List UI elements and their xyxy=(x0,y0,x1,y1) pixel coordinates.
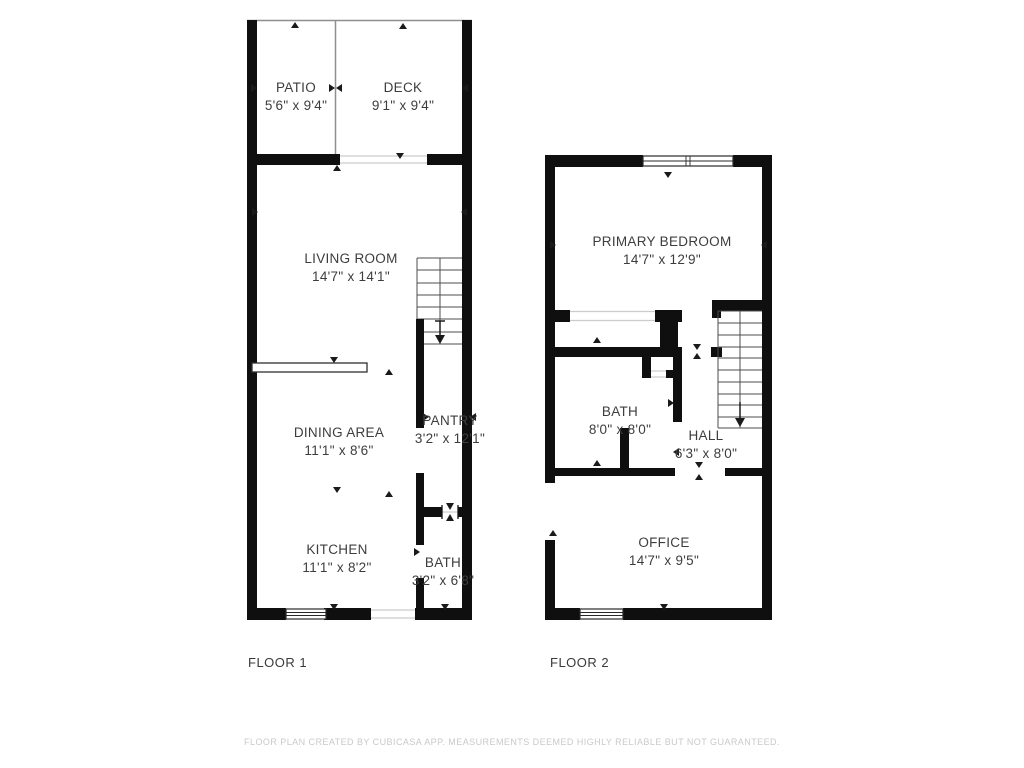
room-name: DINING AREA xyxy=(294,424,384,442)
floor2-caption: FLOOR 2 xyxy=(550,655,609,670)
room-dims: 9'1" x 9'4" xyxy=(372,97,434,115)
bedroom-opening-icon xyxy=(570,312,655,321)
entry-opening-icon xyxy=(371,610,415,618)
floor1-caption: FLOOR 1 xyxy=(248,655,307,670)
room-name: DECK xyxy=(372,79,434,97)
room-dims: 11'1" x 8'2" xyxy=(302,559,371,577)
room-name: PRIMARY BEDROOM xyxy=(592,233,731,251)
room-dims: 8'0" x 8'0" xyxy=(589,421,651,439)
room-dims: 11'1" x 8'6" xyxy=(294,442,384,460)
room-dims: 14'7" x 12'9" xyxy=(592,251,731,269)
floorplan-page: PATIO 5'6" x 9'4" DECK 9'1" x 9'4" LIVIN… xyxy=(0,0,1024,768)
room-dims: 5'6" x 9'4" xyxy=(265,97,327,115)
room-label-office: OFFICE 14'7" x 9'5" xyxy=(629,534,699,570)
room-name: LIVING ROOM xyxy=(304,250,397,268)
room-name: OFFICE xyxy=(629,534,699,552)
stairs-down-arrow-icon xyxy=(735,402,745,427)
room-label-hall: HALL 6'3" x 8'0" xyxy=(675,427,737,463)
stairs-floor2-icon xyxy=(718,311,762,428)
bath1-door-icon xyxy=(442,503,458,521)
office-window-icon xyxy=(580,609,623,619)
room-name: KITCHEN xyxy=(302,541,371,559)
room-dims: 6'3" x 8'0" xyxy=(675,445,737,463)
room-name: PATIO xyxy=(265,79,327,97)
room-label-bath1: BATH 3'2" x 6'8" xyxy=(412,554,474,590)
room-label-bath2: BATH 8'0" x 8'0" xyxy=(589,403,651,439)
bedroom-window-icon xyxy=(643,156,733,166)
room-dims: 3'2" x 12'1" xyxy=(415,430,485,448)
floorplan-drawing xyxy=(0,0,1024,768)
room-name: BATH xyxy=(412,554,474,572)
room-name: HALL xyxy=(675,427,737,445)
room-label-living-room: LIVING ROOM 14'7" x 14'1" xyxy=(304,250,397,286)
room-dims: 14'7" x 9'5" xyxy=(629,552,699,570)
room-label-dining-area: DINING AREA 11'1" x 8'6" xyxy=(294,424,384,460)
shower-opening-icon xyxy=(651,371,666,377)
room-name: BATH xyxy=(589,403,651,421)
room-label-kitchen: KITCHEN 11'1" x 8'2" xyxy=(302,541,371,577)
room-label-deck: DECK 9'1" x 9'4" xyxy=(372,79,434,115)
room-label-primary-bedroom: PRIMARY BEDROOM 14'7" x 12'9" xyxy=(592,233,731,269)
room-dims: 14'7" x 14'1" xyxy=(304,268,397,286)
room-label-patio: PATIO 5'6" x 9'4" xyxy=(265,79,327,115)
slider-opening-icon xyxy=(340,156,427,163)
kitchen-window-icon xyxy=(286,609,326,619)
room-dims: 3'2" x 6'8" xyxy=(412,572,474,590)
room-label-pantry: PANTRY 3'2" x 12'1" xyxy=(415,412,485,448)
room-name: PANTRY xyxy=(415,412,485,430)
disclaimer-text: FLOOR PLAN CREATED BY CUBICASA APP. MEAS… xyxy=(244,737,780,747)
counter-icon xyxy=(252,363,367,372)
